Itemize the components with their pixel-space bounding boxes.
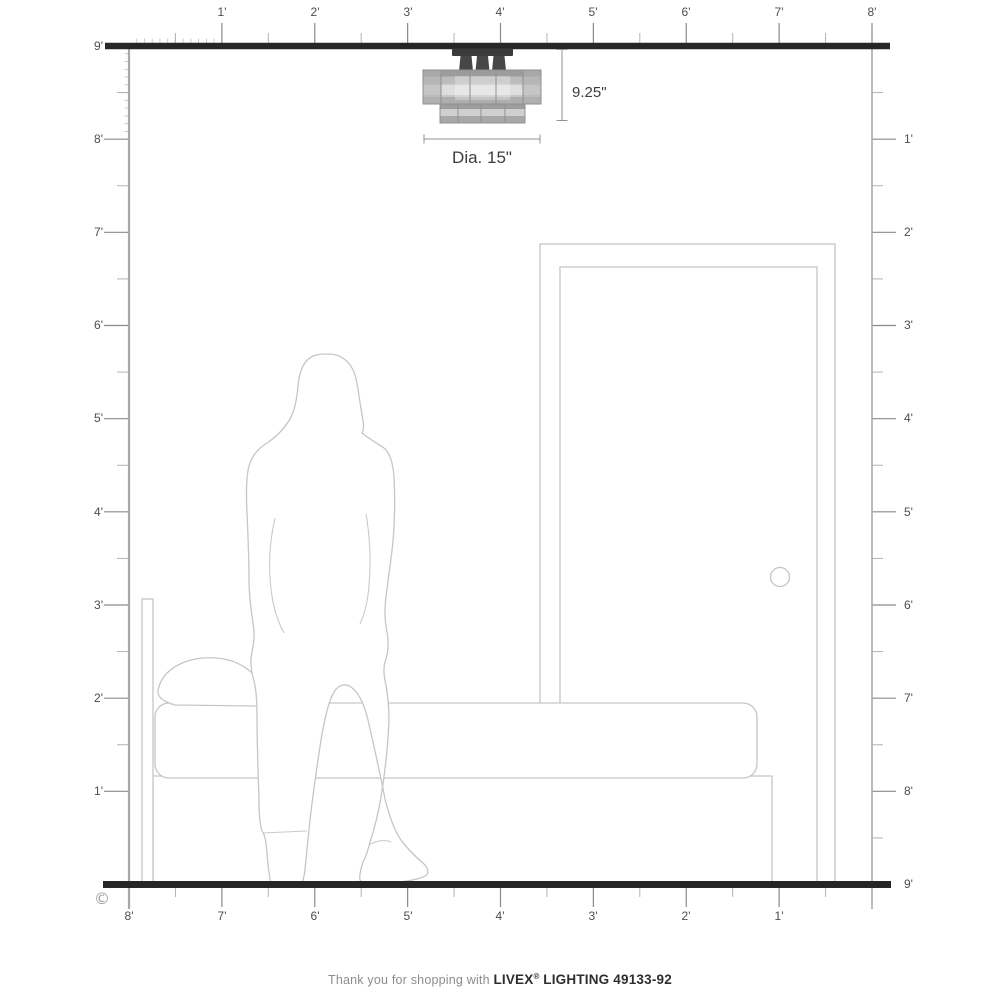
diameter-dimension-label: Dia. 15" bbox=[452, 148, 512, 167]
bottom-ruler-label: 2' bbox=[682, 909, 691, 923]
left-ruler-label: 6' bbox=[94, 318, 103, 332]
height-dimension-line bbox=[557, 49, 568, 121]
footer-brand-text: LIVEX bbox=[493, 972, 533, 987]
ceiling-fixture bbox=[423, 49, 541, 124]
top-ruler-label: 5' bbox=[589, 5, 598, 19]
top-ruler bbox=[137, 23, 872, 43]
left-ruler-label: 9' bbox=[94, 39, 103, 53]
top-ruler-label: 7' bbox=[775, 5, 784, 19]
left-ruler-label: 2' bbox=[94, 691, 103, 705]
bed-headboard bbox=[142, 599, 153, 884]
fixture-stem-left bbox=[459, 56, 473, 71]
top-ruler-labels: 1' 2' 3' 4' 5' 6' 7' 8' bbox=[218, 5, 877, 19]
left-ruler-label: 8' bbox=[94, 132, 103, 146]
top-ruler-label: 1' bbox=[218, 5, 227, 19]
bottom-ruler bbox=[129, 888, 826, 907]
top-ruler-label: 2' bbox=[311, 5, 320, 19]
diameter-dimension-line bbox=[424, 135, 540, 144]
bottom-ruler-label: 7' bbox=[218, 909, 227, 923]
bottom-ruler-labels: 8' 7' 6' 5' 4' 3' 2' 1' bbox=[125, 909, 784, 923]
right-ruler-label: 8' bbox=[904, 784, 913, 798]
bottom-ruler-label: 8' bbox=[125, 909, 134, 923]
left-ruler bbox=[104, 54, 129, 792]
right-ruler-label: 7' bbox=[904, 691, 913, 705]
left-ruler-label: 4' bbox=[94, 505, 103, 519]
right-ruler-label: 4' bbox=[904, 411, 913, 425]
right-ruler-label: 1' bbox=[904, 132, 913, 146]
right-ruler bbox=[872, 93, 896, 838]
fixture-canopy bbox=[452, 49, 513, 57]
left-ruler-labels: 9' 8' 7' 6' 5' 4' 3' 2' 1' bbox=[94, 39, 103, 798]
bottom-ruler-label: 4' bbox=[496, 909, 505, 923]
bottom-ruler-label: 3' bbox=[589, 909, 598, 923]
height-dimension-label: 9.25" bbox=[572, 84, 607, 101]
bed-mattress bbox=[155, 703, 757, 778]
right-ruler-labels: 1' 2' 3' 4' 5' 6' 7' 8' 9' bbox=[904, 132, 913, 891]
fixture-shade-upper bbox=[423, 70, 541, 104]
registered-trademark-symbol: ® bbox=[533, 972, 539, 981]
fixture-shade-lower bbox=[440, 104, 525, 123]
left-ruler-label: 3' bbox=[94, 598, 103, 612]
right-ruler-label: 3' bbox=[904, 318, 913, 332]
footer-thanks-text: Thank you for shopping with bbox=[328, 973, 490, 987]
right-ruler-label: 2' bbox=[904, 225, 913, 239]
left-ruler-label: 5' bbox=[94, 411, 103, 425]
bed-base bbox=[153, 776, 772, 884]
footer-note: Thank you for shopping with LIVEX® LIGHT… bbox=[0, 972, 1000, 987]
left-ruler-label: 7' bbox=[94, 225, 103, 239]
room-scale-diagram: 9.25" Dia. 15" 1' 2' 3' 4' 5' 6' 7' 8' 9… bbox=[0, 0, 1000, 1000]
bed-pillow bbox=[158, 658, 266, 706]
footer-product-text: LIGHTING 49133-92 bbox=[543, 972, 672, 987]
copyright-symbol: © bbox=[94, 889, 110, 908]
fixture-stem-right bbox=[492, 56, 506, 71]
left-ruler-label: 1' bbox=[94, 784, 103, 798]
right-ruler-label: 6' bbox=[904, 598, 913, 612]
right-ruler-label: 5' bbox=[904, 505, 913, 519]
door-knob bbox=[771, 568, 790, 587]
bottom-ruler-label: 5' bbox=[404, 909, 413, 923]
top-ruler-label: 8' bbox=[868, 5, 877, 19]
top-ruler-label: 4' bbox=[496, 5, 505, 19]
right-ruler-label: 9' bbox=[904, 877, 913, 891]
top-ruler-label: 6' bbox=[682, 5, 691, 19]
bottom-ruler-label: 1' bbox=[775, 909, 784, 923]
fixture-stem-center bbox=[476, 56, 490, 71]
top-ruler-label: 3' bbox=[404, 5, 413, 19]
bottom-ruler-label: 6' bbox=[311, 909, 320, 923]
